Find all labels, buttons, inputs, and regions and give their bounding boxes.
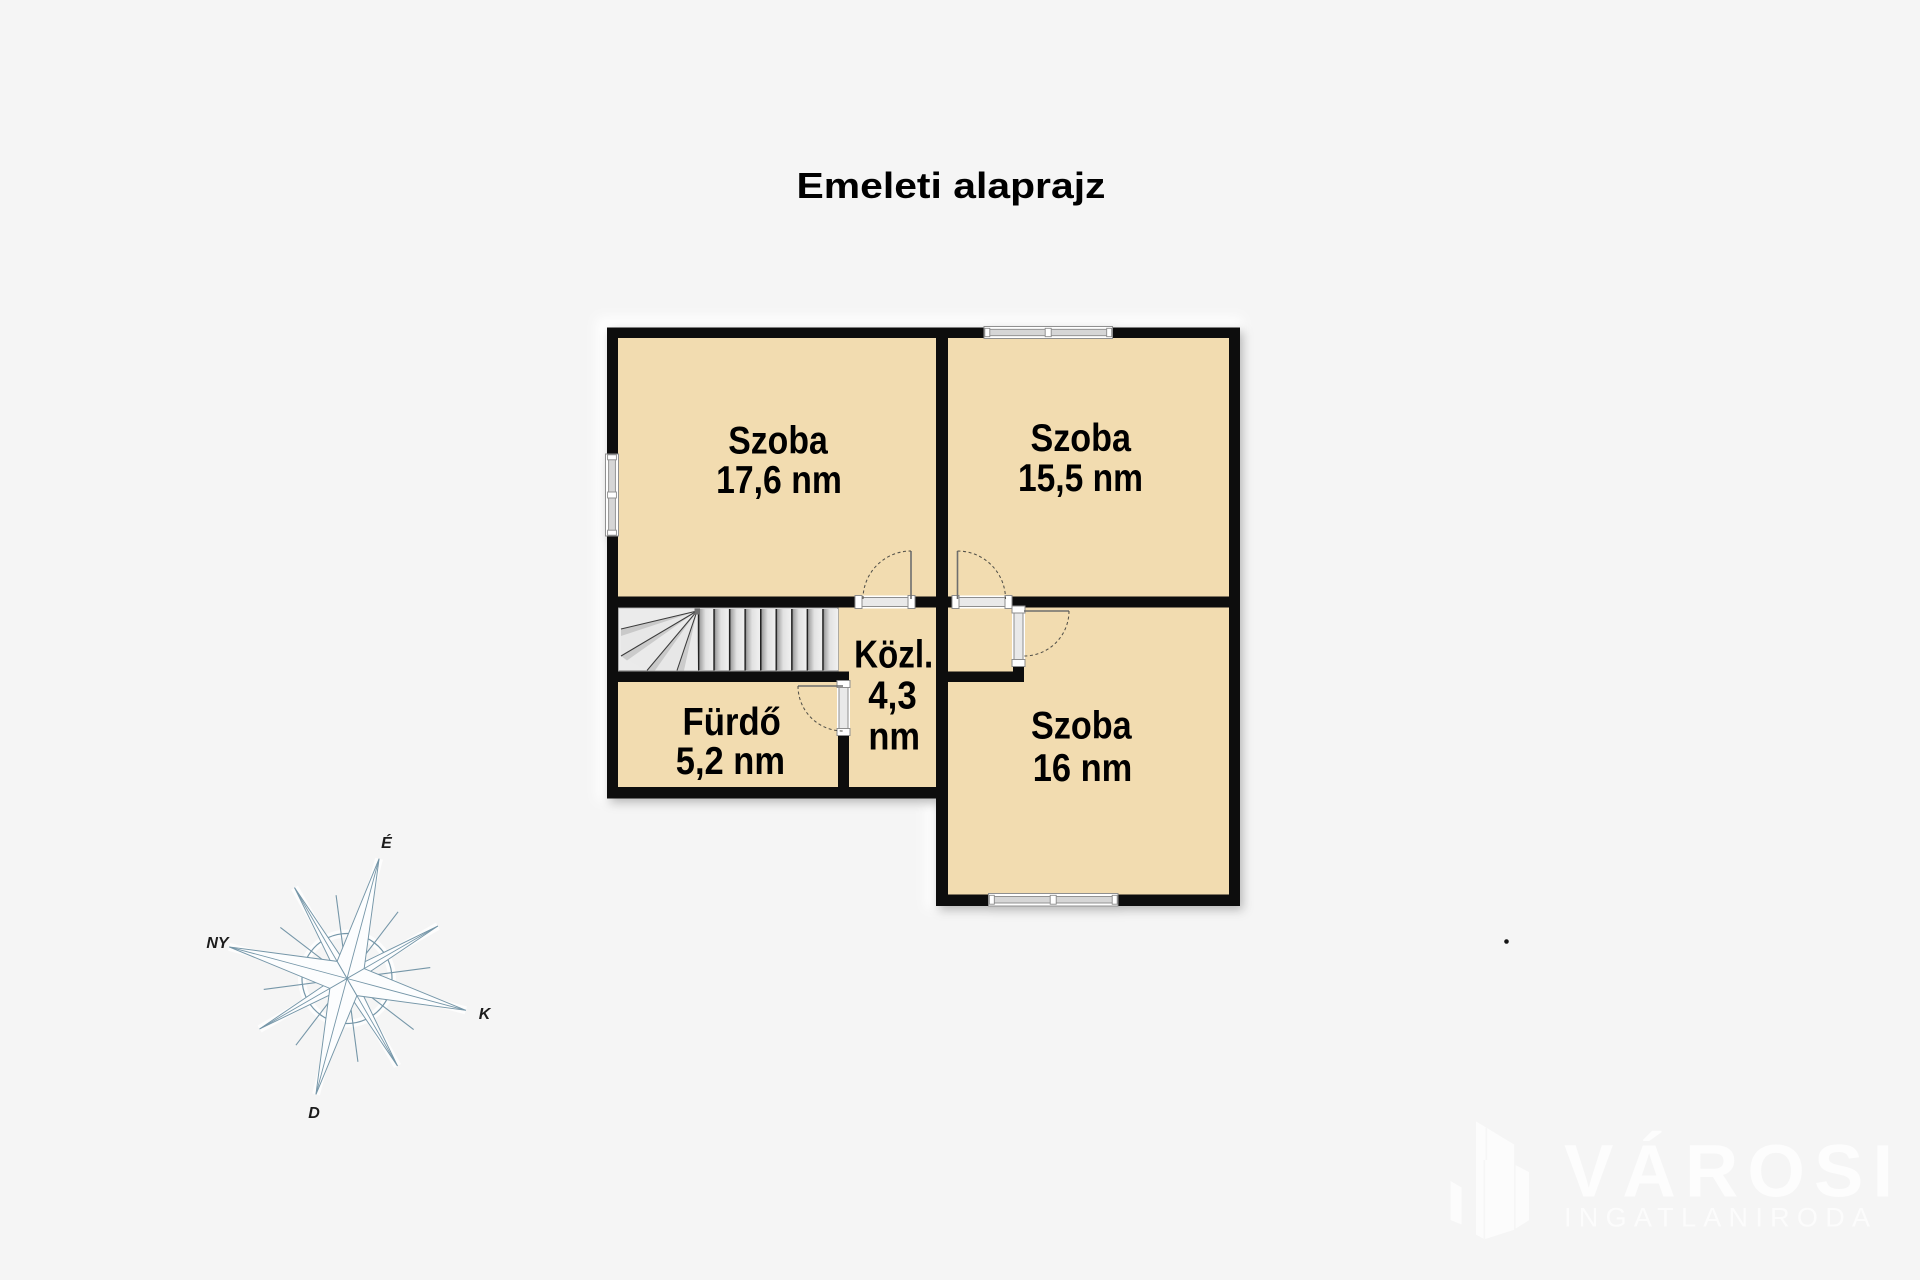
svg-text:5,2 nm: 5,2 nm (676, 740, 785, 783)
svg-text:K: K (479, 1006, 492, 1023)
svg-text:Szoba: Szoba (1031, 705, 1132, 748)
svg-text:4,3: 4,3 (868, 675, 916, 718)
svg-text:NY: NY (206, 935, 230, 952)
svg-text:D: D (308, 1105, 320, 1122)
svg-text:nm: nm (868, 716, 920, 759)
svg-text:17,6 nm: 17,6 nm (716, 459, 842, 502)
svg-text:VÁROSI: VÁROSI (1564, 1129, 1893, 1212)
svg-text:Fürdő: Fürdő (683, 701, 781, 744)
svg-text:16 nm: 16 nm (1033, 747, 1133, 790)
svg-text:Szoba: Szoba (728, 420, 828, 463)
svg-text:Emeleti alaprajz: Emeleti alaprajz (797, 165, 1106, 206)
svg-text:É: É (381, 833, 393, 852)
svg-text:Közl.: Közl. (854, 634, 933, 677)
svg-text:Szoba: Szoba (1030, 417, 1131, 460)
svg-text:15,5 nm: 15,5 nm (1018, 457, 1143, 500)
